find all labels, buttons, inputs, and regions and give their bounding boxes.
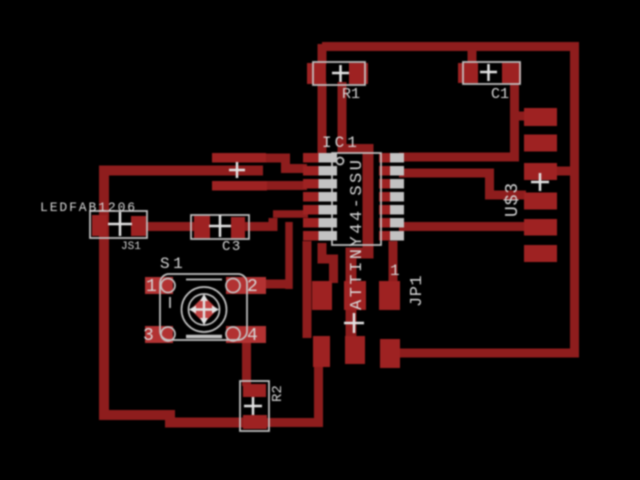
svg-text:C1: C1 <box>491 86 509 103</box>
svg-text:U$3: U$3 <box>503 182 523 217</box>
svg-text:ATTINY44-SSU: ATTINY44-SSU <box>348 158 367 310</box>
svg-text:JS1: JS1 <box>121 241 141 253</box>
svg-text:1: 1 <box>146 277 157 297</box>
svg-text:S1: S1 <box>160 255 186 273</box>
svg-text:JP1: JP1 <box>408 275 427 307</box>
svg-text:C3: C3 <box>222 239 242 255</box>
svg-text:IC1: IC1 <box>322 134 360 152</box>
svg-text:1: 1 <box>390 262 400 280</box>
svg-text:R2: R2 <box>270 385 286 402</box>
svg-text:3: 3 <box>143 326 154 346</box>
svg-text:R1: R1 <box>342 86 360 103</box>
svg-text:LEDFAB1206: LEDFAB1206 <box>40 200 137 215</box>
svg-text:4: 4 <box>247 326 258 346</box>
svg-text:2: 2 <box>247 277 258 297</box>
